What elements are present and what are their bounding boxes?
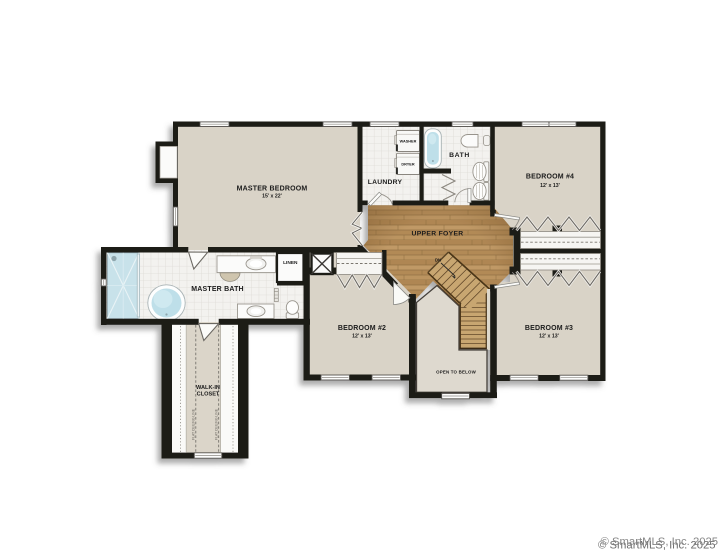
svg-text:WALK-IN: WALK-IN — [196, 385, 220, 391]
svg-text:12' x 13': 12' x 13' — [539, 334, 559, 340]
svg-text:© SmartMLS, Inc. 2025: © SmartMLS, Inc. 2025 — [601, 536, 719, 548]
svg-text:12' x 13': 12' x 13' — [540, 183, 560, 189]
svg-text:CLOSET: CLOSET — [197, 391, 220, 397]
svg-text:FLAT CEILING LINE: FLAT CEILING LINE — [191, 408, 195, 440]
svg-text:BATH: BATH — [449, 152, 470, 159]
svg-text:MASTER BATH: MASTER BATH — [191, 286, 244, 293]
svg-text:FLAT CEILING LINE: FLAT CEILING LINE — [214, 408, 218, 440]
svg-text:WASHER: WASHER — [400, 139, 417, 143]
svg-text:12' x 13': 12' x 13' — [352, 334, 372, 340]
svg-text:BEDROOM #3: BEDROOM #3 — [525, 325, 573, 332]
svg-text:DN: DN — [435, 258, 441, 263]
svg-text:15' x 22': 15' x 22' — [262, 193, 282, 199]
svg-text:BEDROOM #2: BEDROOM #2 — [338, 325, 386, 332]
svg-text:OPEN TO BELOW: OPEN TO BELOW — [436, 369, 476, 374]
svg-text:MASTER BEDROOM: MASTER BEDROOM — [237, 186, 308, 193]
svg-text:LINEN: LINEN — [283, 260, 298, 266]
svg-text:DRYER: DRYER — [401, 163, 414, 167]
svg-text:UPPER FOYER: UPPER FOYER — [411, 231, 463, 238]
svg-text:LAUNDRY: LAUNDRY — [368, 179, 403, 186]
svg-text:BEDROOM #4: BEDROOM #4 — [526, 174, 574, 181]
